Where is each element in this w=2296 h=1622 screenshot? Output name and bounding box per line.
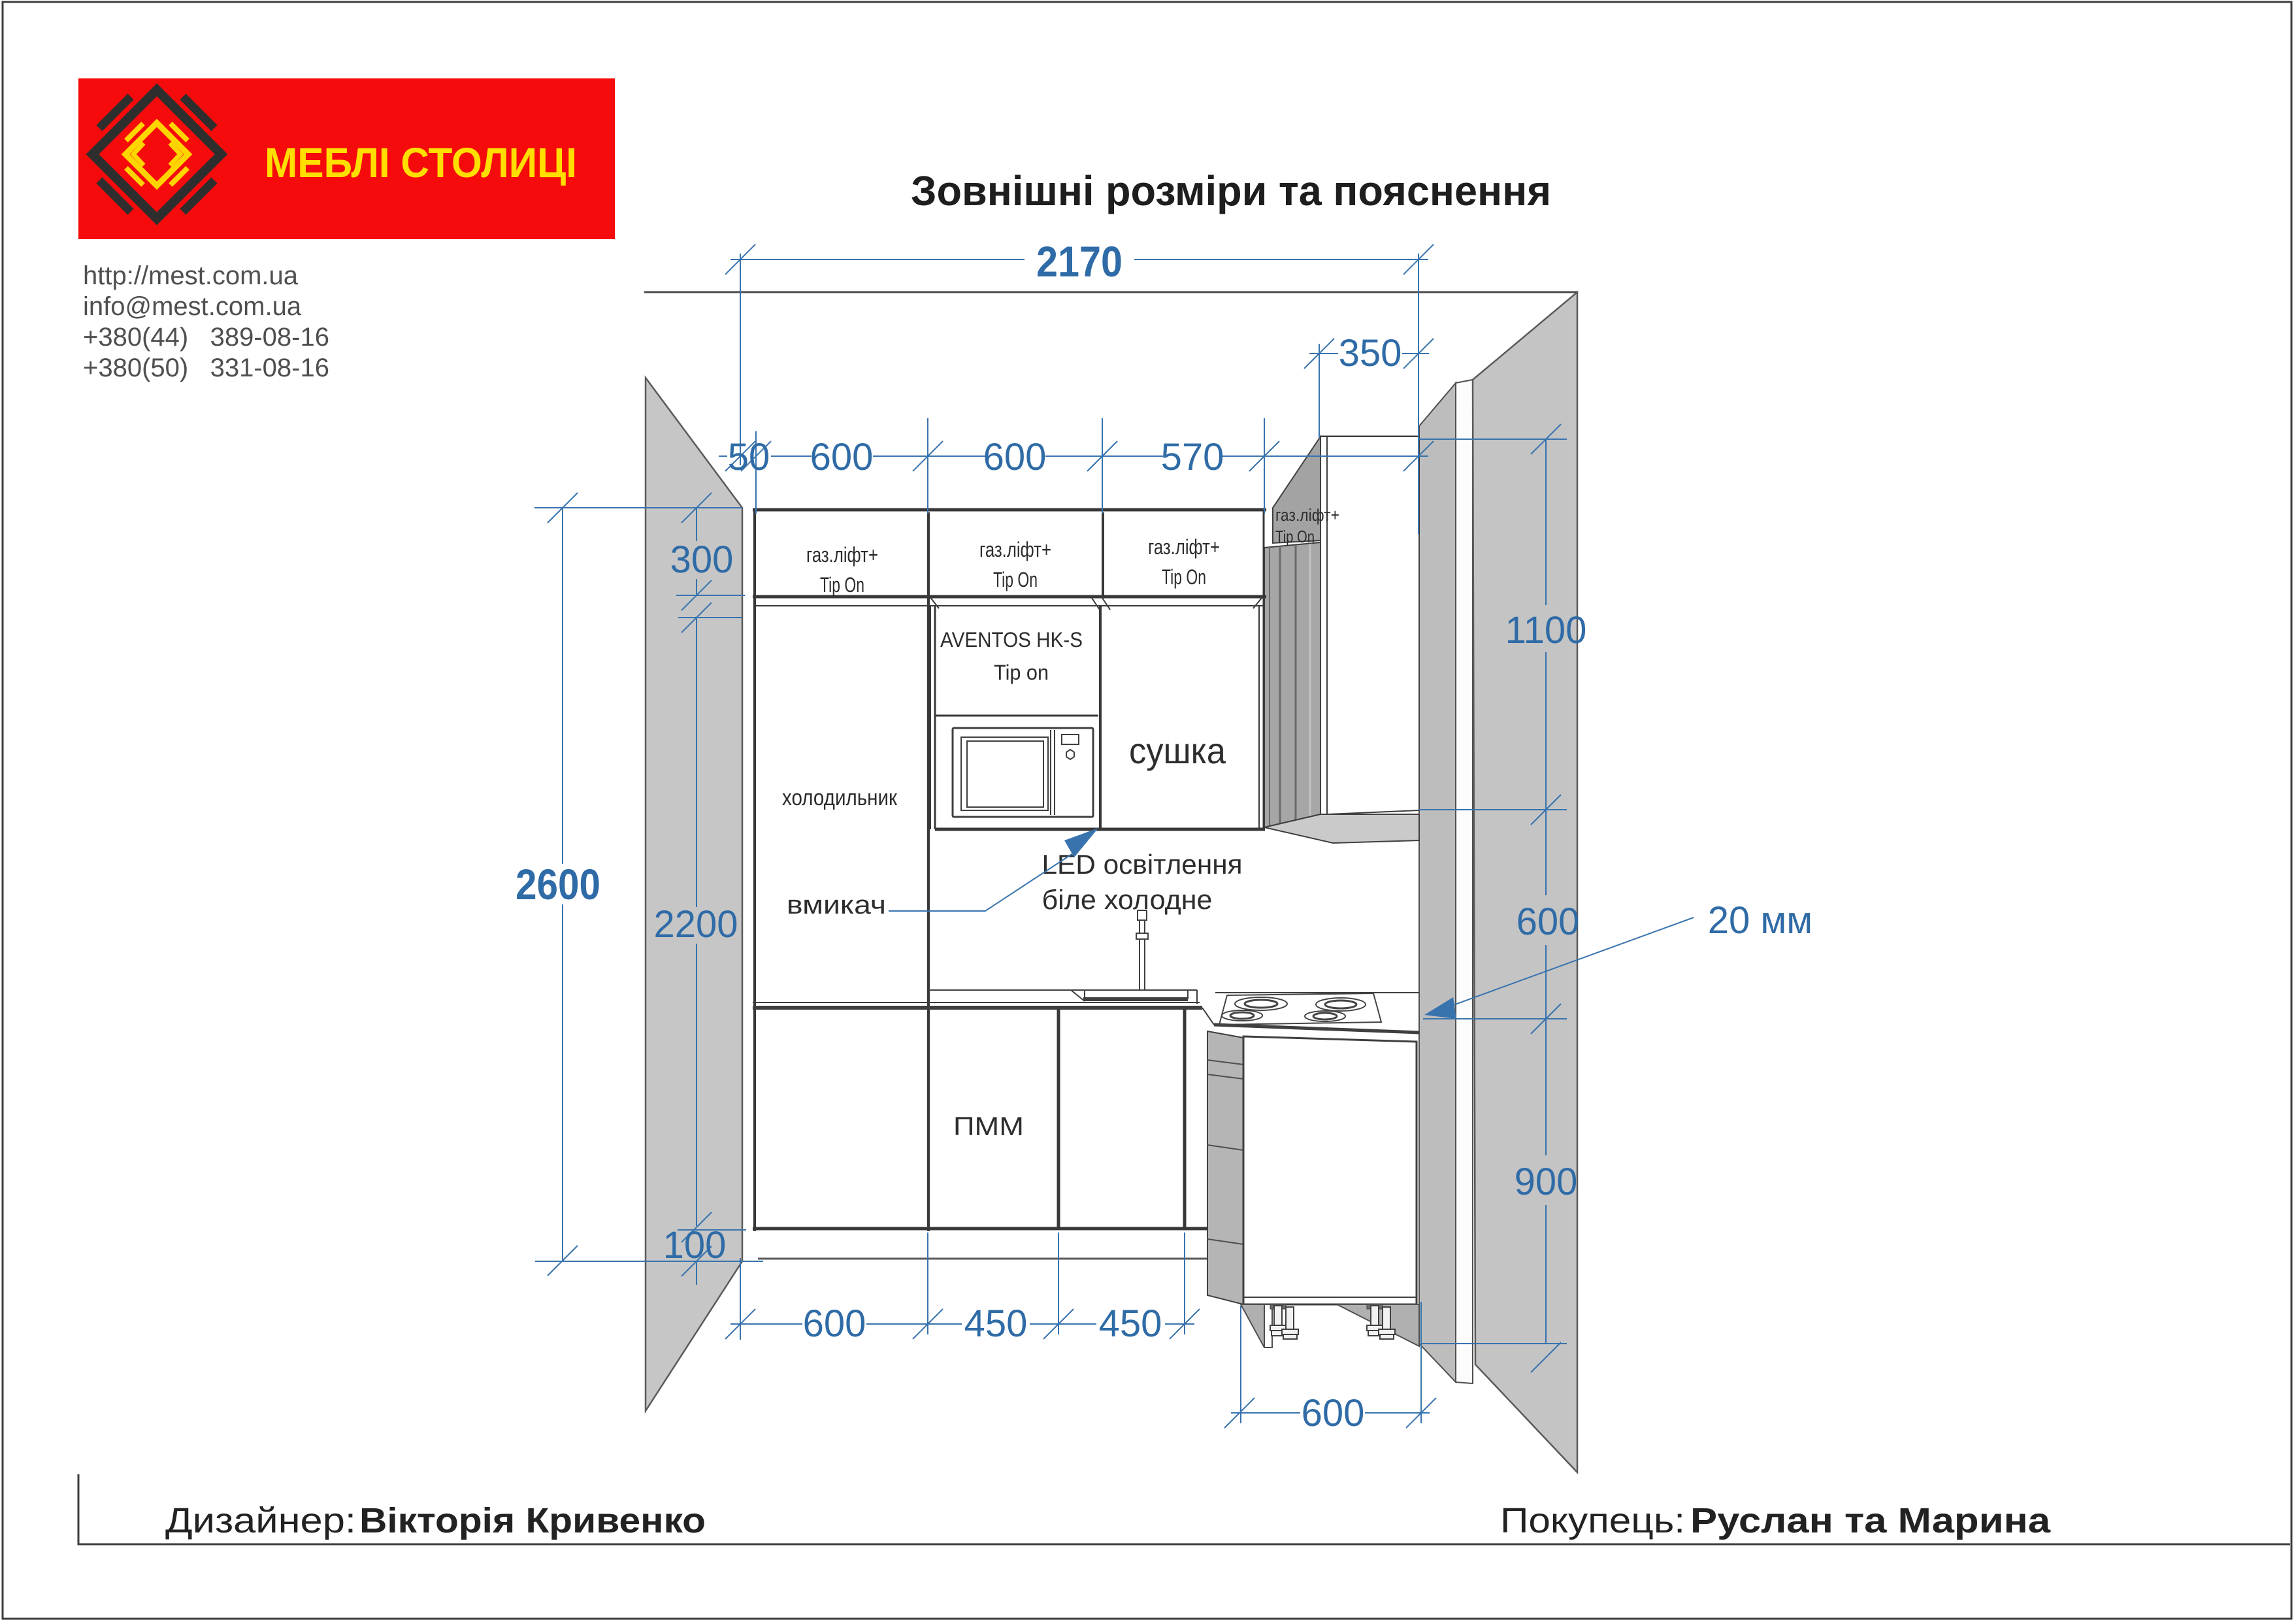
svg-text:газ.ліфт+: газ.ліфт+ [806, 543, 878, 567]
svg-text:300: 300 [670, 538, 734, 581]
svg-text:900: 900 [1515, 1161, 1578, 1203]
svg-text:50: 50 [728, 436, 770, 478]
svg-text:2200: 2200 [653, 903, 738, 946]
svg-text:холодильник: холодильник [782, 786, 898, 810]
svg-text:600: 600 [1302, 1392, 1365, 1434]
svg-text:1100: 1100 [1505, 609, 1587, 652]
svg-text:Руслан та Марина: Руслан та Марина [1690, 1501, 2051, 1540]
svg-text:http://mest.com.ua: http://mest.com.ua [83, 261, 299, 290]
svg-text:МЕБЛІ СТОЛИЦІ: МЕБЛІ СТОЛИЦІ [265, 139, 577, 186]
svg-text:450: 450 [1099, 1302, 1162, 1345]
svg-text:газ.ліфт+: газ.ліфт+ [1148, 535, 1220, 559]
svg-text:Дизайнер:: Дизайнер: [165, 1501, 356, 1540]
svg-text:600: 600 [803, 1302, 866, 1345]
svg-text:газ.ліфт+: газ.ліфт+ [979, 538, 1051, 561]
svg-text:570: 570 [1161, 436, 1224, 478]
svg-text:газ.ліфт+: газ.ліфт+ [1275, 505, 1339, 525]
svg-text:біле холодне: біле холодне [1042, 884, 1213, 915]
svg-text:600: 600 [810, 436, 874, 478]
svg-text:ПММ: ПММ [953, 1112, 1024, 1141]
svg-text:2170: 2170 [1036, 237, 1123, 286]
svg-text:Покупець:: Покупець: [1500, 1501, 1685, 1540]
svg-text:100: 100 [663, 1224, 727, 1266]
svg-text:+380(44) 389-08-16: +380(44) 389-08-16 [83, 323, 329, 352]
svg-text:450: 450 [964, 1302, 1028, 1345]
svg-text:+380(50) 331-08-16: +380(50) 331-08-16 [83, 354, 329, 382]
svg-text:вмикач: вмикач [787, 891, 886, 919]
svg-text:Вікторія Кривенко: Вікторія Кривенко [359, 1501, 706, 1540]
svg-text:2600: 2600 [516, 860, 600, 908]
svg-text:сушка: сушка [1129, 730, 1226, 771]
svg-text:Tip On: Tip On [1275, 527, 1315, 546]
svg-text:600: 600 [983, 436, 1047, 478]
svg-text:AVENTOS HK-S: AVENTOS HK-S [940, 628, 1083, 652]
svg-text:info@mest.com.ua: info@mest.com.ua [83, 292, 302, 321]
svg-text:350: 350 [1339, 332, 1402, 374]
svg-text:Tip On: Tip On [820, 573, 864, 597]
svg-text:Зовнішні розміри та пояснення: Зовнішні розміри та пояснення [911, 167, 1551, 214]
svg-text:20 мм: 20 мм [1708, 899, 1812, 942]
svg-text:Tip On: Tip On [1162, 565, 1206, 589]
svg-text:Tip on: Tip on [994, 661, 1049, 684]
svg-text:600: 600 [1517, 901, 1580, 943]
svg-text:Tip On: Tip On [993, 568, 1038, 591]
